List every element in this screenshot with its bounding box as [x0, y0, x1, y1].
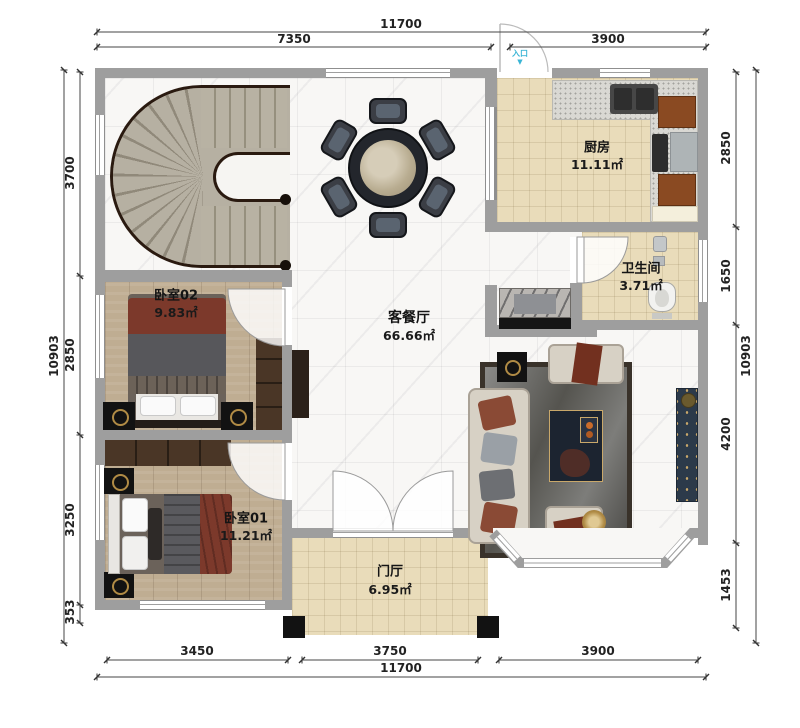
- sofa-cushion-1: [477, 395, 516, 431]
- dim-left-1: 3700: [64, 156, 76, 189]
- dim-top-total: 11700: [380, 18, 422, 30]
- foyer-column-right: [477, 616, 499, 638]
- dim-top-right: 3900: [591, 33, 624, 45]
- dim-right-3: 4200: [720, 417, 732, 450]
- bathroom-area: 3.71㎡: [619, 280, 662, 293]
- staircase-upper-flight: [201, 88, 287, 148]
- dim-left-2: 2850: [64, 338, 76, 371]
- window-bathroom-right: [698, 240, 708, 302]
- sideboard-top-inset: [514, 294, 556, 314]
- dim-left-total: 10903: [48, 335, 60, 377]
- dim-bottom-left: 3450: [180, 645, 213, 657]
- sink-basin-left: [614, 88, 632, 110]
- dim-left-4: 353: [64, 599, 76, 624]
- dim-bottom-center: 3750: [373, 645, 406, 657]
- bedroom02-label: 卧室02: [154, 290, 198, 303]
- wall-bathroom-bottom: [570, 320, 708, 330]
- coffee-table: [549, 410, 603, 482]
- bed01-pillow-top: [122, 498, 148, 532]
- bathroom-sink: [653, 236, 667, 252]
- kitchen-fridge: [670, 132, 698, 172]
- foyer-column-left: [283, 616, 305, 638]
- entry-door-opening: [497, 68, 552, 78]
- bed02-pillow-left: [140, 396, 176, 416]
- entry-text: 入口: [512, 49, 528, 58]
- bedroom02-area: 9.83㎡: [154, 307, 197, 320]
- bedroom01-nightstand-top: [104, 468, 134, 494]
- bedroom01-bed: [108, 494, 232, 574]
- coffee-table-art: [560, 449, 590, 477]
- bedroom01-nightstand-bottom: [104, 572, 134, 598]
- dim-top-left: 7350: [277, 33, 310, 45]
- window-bedroom01-bottom: [140, 600, 265, 610]
- staircase-inner-rail: [213, 152, 290, 202]
- sofa: [468, 388, 530, 544]
- armchair-top-throw: [571, 342, 602, 385]
- living-dining-label: 客餐厅: [388, 311, 430, 325]
- kitchen-passage: [485, 107, 497, 200]
- bed02-blanket-gray: [128, 334, 226, 376]
- sofa-cushion-4: [480, 501, 519, 536]
- armchair-top: [548, 344, 624, 384]
- bedroom01-wardrobe: [105, 440, 231, 466]
- bathroom-mat: [652, 313, 672, 319]
- entry-label: 入口 ▼: [512, 50, 528, 66]
- kitchen-label: 厨房: [584, 142, 610, 155]
- wall-bathroom-left: [570, 283, 582, 320]
- bedroom02-nightstand-left: [103, 402, 135, 430]
- bedroom02-nightstand-right: [221, 402, 253, 430]
- tv-console: [676, 388, 698, 502]
- entry-arrow-icon: ▼: [517, 58, 522, 66]
- kitchen-cabinet-brown-1: [658, 96, 696, 128]
- wall-kitchen-bottom: [485, 222, 708, 232]
- bedroom01-label: 卧室01: [224, 513, 268, 526]
- kitchen-sink: [610, 84, 658, 114]
- bedroom02-wardrobe: [256, 338, 282, 430]
- dim-right-4: 1453: [720, 568, 732, 601]
- coffee-table-tray: [580, 417, 598, 443]
- kitchen-stove: [652, 134, 668, 172]
- bed01-blanket-gray: [164, 494, 200, 574]
- window-top-stair: [326, 68, 450, 78]
- bed02-headboard: [128, 420, 226, 428]
- wall-stair-bottom: [95, 270, 290, 282]
- wall-right: [698, 68, 708, 545]
- wall-niche-left: [485, 285, 497, 337]
- floor-plan: 厨房 11.11㎡ 卫生间 3.71㎡ 客餐厅 66.66㎡ 卧室02 9.83…: [0, 0, 800, 728]
- living-dining-area: 66.66㎡: [383, 330, 435, 343]
- bed02-pillow-right: [180, 396, 216, 416]
- window-top-kitchen: [600, 68, 650, 78]
- bedroom02-door-opening: [282, 287, 292, 345]
- bed01-accent-pillow: [148, 508, 162, 560]
- tv-console-plant: [681, 393, 696, 408]
- dim-right-1: 2850: [720, 131, 732, 164]
- bed01-pillow-bottom: [122, 536, 148, 570]
- sofa-cushion-2: [480, 432, 518, 466]
- decor-plate: [582, 510, 606, 534]
- living-wall-cabinet: [292, 350, 309, 418]
- staircase-newel-post-1: [280, 194, 291, 205]
- dining-table: [348, 128, 428, 208]
- kitchen-cabinet-brown-2: [658, 174, 696, 206]
- dim-bottom-right: 3900: [581, 645, 614, 657]
- dining-chair: [369, 212, 407, 238]
- bedroom01-door-opening: [282, 443, 292, 500]
- window-left-stair: [95, 115, 105, 175]
- foyer-label: 门厅: [377, 566, 403, 579]
- french-door-threshold: [333, 528, 453, 538]
- dim-right-2: 1650: [720, 259, 732, 292]
- bed02-blanket-plaid: [128, 376, 226, 394]
- kitchen-cabinet-white: [652, 206, 698, 222]
- dim-bottom-total: 11700: [380, 662, 422, 674]
- wall-foyer-left-segment: [292, 528, 333, 538]
- sideboard-base: [499, 318, 571, 329]
- sink-basin-right: [636, 88, 654, 110]
- bathroom-label: 卫生间: [621, 263, 660, 276]
- dim-left-3: 3250: [64, 503, 76, 536]
- kitchen-area: 11.11㎡: [571, 159, 623, 172]
- dining-table-top: [360, 140, 416, 196]
- sideboard: [499, 288, 571, 318]
- sofa-cushion-3: [479, 468, 516, 501]
- foyer-area: 6.95㎡: [368, 584, 411, 597]
- dim-right-total: 10903: [740, 335, 752, 377]
- side-table-1: [497, 352, 527, 382]
- window-left-bedroom02: [95, 295, 105, 378]
- dining-chair: [369, 98, 407, 124]
- bathroom-door-opening: [570, 237, 582, 283]
- wall-bedroom-divider: [95, 430, 292, 440]
- staircase-lower-flight: [201, 206, 287, 265]
- bed01-headboard: [108, 494, 120, 574]
- bedroom01-area: 11.21㎡: [220, 530, 272, 543]
